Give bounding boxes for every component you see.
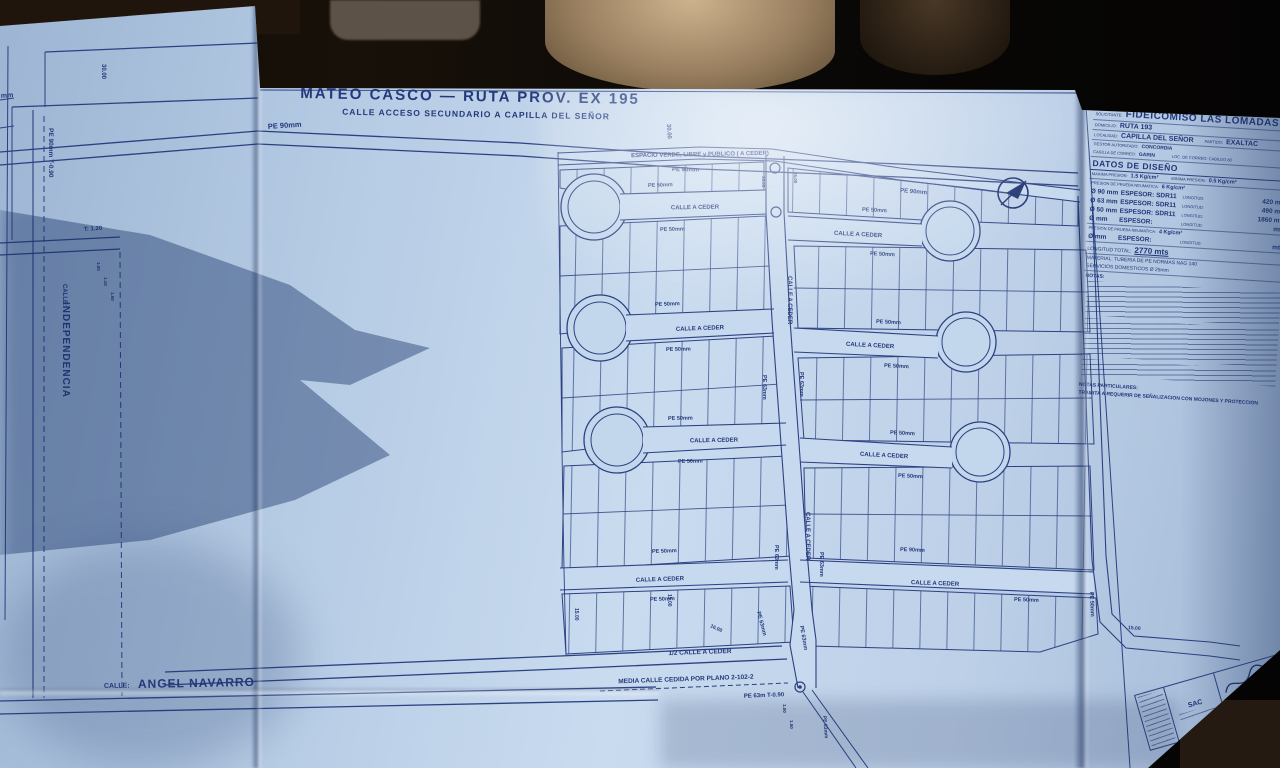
localidad-label: LOCALIDAD: (1094, 132, 1118, 138)
correo-label: CASILLA DE CORREO: (1093, 149, 1136, 157)
pipe-label: PE 50mm (648, 182, 673, 189)
street-label-angel-navarro: ANGEL NAVARRO (138, 675, 255, 691)
pipe-label: PE 50mm (652, 548, 677, 555)
dim-label: 1.00 (782, 704, 787, 713)
domicilio-value: RUTA 193 (1120, 123, 1153, 132)
pipe-label: PE 90mm (672, 167, 699, 173)
solicitante-label: SOLICITANTE: (1095, 111, 1122, 118)
dim-label: 25.00 (793, 172, 798, 184)
plan-title: MATEO CASCO — RUTA PROV. EX 195 (300, 85, 640, 108)
row-longitud-label: LONGITUD: (1180, 239, 1226, 247)
pipe-label: PE 63mm (818, 552, 824, 577)
street-label-calle-a-ceder: CALLE A CEDER (671, 205, 720, 212)
pipe-label-cut: mm (1, 92, 14, 100)
street-label-prefix: CALLE: (104, 683, 130, 690)
total-value: 2770 mts (1134, 246, 1169, 257)
pipe-label: PE 50mm (678, 459, 703, 465)
dim-label: 35.05 (761, 176, 766, 188)
pipe-label: PE 63mm (798, 372, 804, 397)
dim-label: 30.00 (665, 124, 672, 140)
street-label-calle-a-ceder: CALLE A CEDER (690, 438, 739, 445)
dim-label: 15.00 (1128, 625, 1141, 632)
row-diameter: Ø mm (1088, 233, 1118, 242)
pipe-label: PE 50mm (660, 227, 685, 233)
partido-value: EXALTAC (1226, 139, 1258, 148)
domicilio-label: DOMICILIO: (1095, 122, 1117, 128)
blueprint-sheet: MATEO CASCO — RUTA PROV. EX 195 CALLE AC… (0, 0, 1280, 768)
pipe-label: PE 50mm (1014, 597, 1039, 604)
row-diameter: Ø mm (1089, 215, 1119, 224)
dim-label: 1.50 (789, 720, 794, 729)
maxima-label: MAXIMA PRESION: (1092, 171, 1128, 178)
correo-value: GARIN (1139, 152, 1155, 159)
pipe-label: PE 50mm (666, 347, 691, 353)
minima-label: MINIMA PRESION: (1171, 176, 1206, 183)
dim-label: 1.00 (96, 262, 101, 271)
street-label-independencia: INDEPENDENCIA (60, 302, 71, 398)
dim-label: 1.50 (110, 292, 115, 301)
pipe-label: PE 63mm (821, 716, 829, 740)
pipe-label: PE 90mm (268, 120, 303, 131)
plan-subtitle: CALLE ACCESO SECUNDARIO A CAPILLA DEL SE… (342, 107, 610, 122)
pipe-label: PE 50mm (1088, 592, 1095, 617)
partido-label: PARTIDO: (1204, 139, 1223, 145)
row-longitud-label: LONGITUD: (1181, 222, 1227, 230)
car-dashboard-gray (330, 0, 480, 40)
street-label-calle-a-ceder: CALLE A CEDER (786, 276, 792, 325)
pipe-label: PE 63mm (773, 545, 779, 570)
dim-label: 30.00 (100, 64, 106, 80)
street-label-media-calle: MEDIA CALLE CEDIDA POR PLANO 2-102-2 (618, 674, 754, 686)
dim-label: 15.00 (573, 608, 579, 621)
pipe-label: PE 90mm T-0.90 (47, 128, 54, 178)
pipe-label: PE 50mm (668, 416, 693, 422)
street-label-half-calle: 1/2 CALLE A CEDER (668, 648, 732, 657)
car-interior-brown (860, 0, 1010, 75)
dim-label: T: 1.20 (84, 226, 103, 233)
title-block-panel: SOLICITANTE: FIDEICOMISO LAS LOMADAS DOM… (1076, 106, 1280, 409)
pipe-label: PE 90mm (900, 547, 925, 554)
pipe-label: PE 63m T-0.90 (744, 692, 785, 699)
pipe-label: PE 50mm (655, 301, 680, 308)
pipe-label: PE 63mm (761, 375, 767, 400)
dim-label: 1.10 (103, 277, 108, 286)
maxima-value: 1.5 Kg/cm² (1130, 173, 1158, 181)
loc-correo: LOC. DE CORREO: CABILDO 80 (1172, 154, 1232, 163)
photo-scene: MATEO CASCO — RUTA PROV. EX 195 CALLE AC… (0, 0, 1280, 768)
minima-value: 0.5 Kg/cm² (1209, 178, 1237, 186)
street-label-calle-a-ceder: CALLE A CEDER (804, 512, 810, 561)
car-seat-tan (545, 0, 835, 92)
total-label: LONGITUD TOTAL: (1087, 246, 1131, 255)
pipe-label: PE 50mm (650, 596, 675, 603)
